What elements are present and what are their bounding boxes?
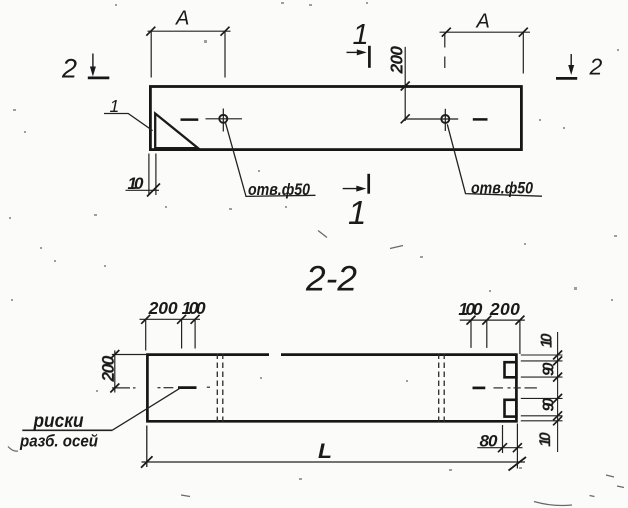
svg-text:90: 90: [541, 398, 558, 412]
svg-text:80: 80: [480, 432, 499, 451]
svg-text:1: 1: [110, 96, 120, 116]
svg-text:отв.ф50: отв.ф50: [248, 181, 311, 199]
svg-text:1: 1: [353, 19, 369, 51]
svg-text:200: 200: [148, 298, 178, 318]
svg-text:разб. осей: разб. осей: [19, 433, 98, 451]
svg-text:2-2: 2-2: [305, 260, 357, 299]
svg-text:риски: риски: [33, 411, 84, 432]
svg-text:отв.ф50: отв.ф50: [471, 180, 534, 198]
svg-text:200: 200: [98, 355, 118, 382]
svg-text:200: 200: [489, 299, 520, 319]
svg-text:2: 2: [61, 54, 77, 84]
svg-text:А: А: [175, 8, 189, 30]
svg-text:100: 100: [458, 299, 482, 319]
svg-text:10: 10: [537, 432, 554, 447]
svg-text:200: 200: [387, 46, 407, 75]
svg-text:А: А: [476, 11, 490, 33]
svg-text:100: 100: [182, 298, 206, 318]
svg-text:L: L: [318, 440, 332, 463]
svg-text:90: 90: [541, 362, 558, 376]
svg-text:10: 10: [539, 333, 556, 348]
svg-text:1: 1: [348, 194, 366, 231]
svg-text:10: 10: [128, 174, 145, 193]
svg-text:2: 2: [589, 54, 603, 80]
